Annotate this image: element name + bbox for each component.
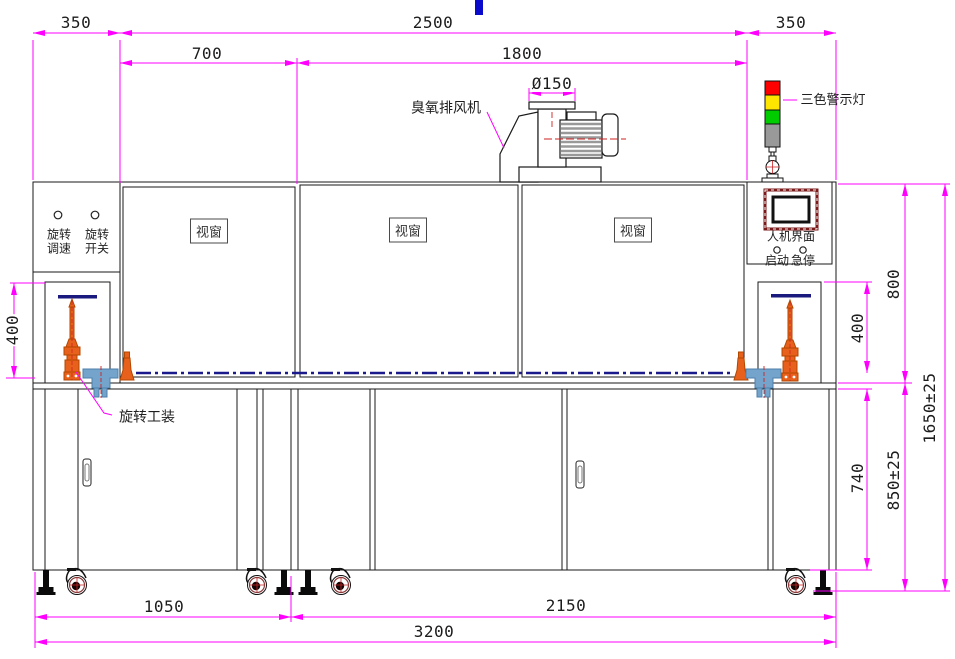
dim-800: 800	[886, 268, 902, 300]
dim-1650: 1650±25	[922, 372, 938, 445]
estop-button-icon	[800, 247, 806, 253]
leveling-foot-icon	[299, 570, 318, 595]
dim-1050: 1050	[143, 599, 186, 615]
label-estop: 急停	[791, 255, 815, 268]
dim-740: 740	[850, 462, 866, 494]
speed-knob-icon	[54, 211, 62, 219]
label-knob-switch-2: 开关	[85, 243, 109, 256]
caster-wheel-icon	[247, 568, 267, 595]
upper-enclosure	[33, 182, 836, 383]
hmi-screen	[765, 190, 817, 253]
label-viewport-3: 视窗	[614, 218, 652, 243]
table-band	[33, 383, 836, 389]
label-ozone-fan: 臭氧排风机	[411, 102, 481, 117]
tower-light	[762, 81, 783, 182]
dim-400-left: 400	[5, 314, 21, 346]
exhaust-fan	[500, 102, 626, 182]
dim-diameter-150: Ø150	[531, 76, 574, 92]
fixture-top-bar-icon	[58, 295, 97, 299]
viewport-panel-3	[522, 185, 744, 377]
door-handle-left	[83, 459, 91, 486]
rotary-fixture-right	[734, 294, 811, 398]
dim-2150: 2150	[545, 598, 588, 614]
fixture-top-bar-icon	[771, 294, 811, 298]
hmi-display-icon	[773, 197, 809, 222]
engineering-drawing: 350 2500 350 700 1800 Ø150 400 400 800 1…	[0, 0, 955, 659]
cone-icon	[120, 352, 134, 380]
light-body-icon	[765, 124, 780, 147]
caster-wheel-icon	[67, 568, 87, 595]
dim-2500: 2500	[412, 15, 455, 31]
label-knob-switch-1: 旋转	[85, 229, 109, 242]
leader-lines	[76, 100, 797, 415]
light-red-icon	[765, 81, 780, 95]
dimension-lines	[14, 33, 945, 642]
start-button-icon	[774, 247, 780, 253]
dim-350-right: 350	[775, 15, 807, 31]
dim-1800: 1800	[501, 46, 544, 62]
spindle-icon	[64, 299, 80, 380]
viewport-panel-2	[300, 185, 518, 377]
feet-and-casters	[37, 568, 833, 595]
machine-body	[33, 182, 836, 570]
dim-3200: 3200	[413, 624, 456, 640]
label-viewport-1: 视窗	[190, 219, 228, 244]
extension-lines	[6, 40, 950, 648]
label-hmi: 人机界面	[767, 231, 815, 244]
dim-850: 850±25	[886, 449, 902, 512]
viewport-panel-1	[123, 187, 295, 377]
motor-endcap-icon	[602, 114, 618, 156]
dim-400-right: 400	[850, 312, 866, 344]
control-knobs	[54, 211, 99, 219]
label-knob-speed-2: 调速	[47, 243, 71, 256]
fan-flange-icon	[529, 102, 575, 109]
door-handle-right	[576, 461, 584, 488]
leader-ozone-fan	[487, 112, 504, 148]
label-rotary-fixture: 旋转工装	[119, 411, 175, 426]
label-viewport-2: 视窗	[389, 218, 427, 243]
light-yellow-icon	[765, 95, 780, 110]
caster-wheel-icon	[786, 568, 806, 595]
label-knob-speed-1: 旋转	[47, 229, 71, 242]
leveling-foot-icon	[37, 570, 56, 595]
spindle-icon	[782, 300, 798, 381]
switch-knob-icon	[91, 211, 99, 219]
label-start: 启动	[765, 255, 789, 268]
light-green-icon	[765, 110, 780, 124]
caster-wheel-icon	[331, 568, 351, 595]
top-blue-marker-icon	[475, 0, 483, 15]
dim-350-left: 350	[60, 15, 92, 31]
label-tricolor-light: 三色警示灯	[800, 94, 865, 108]
dim-700: 700	[191, 46, 223, 62]
